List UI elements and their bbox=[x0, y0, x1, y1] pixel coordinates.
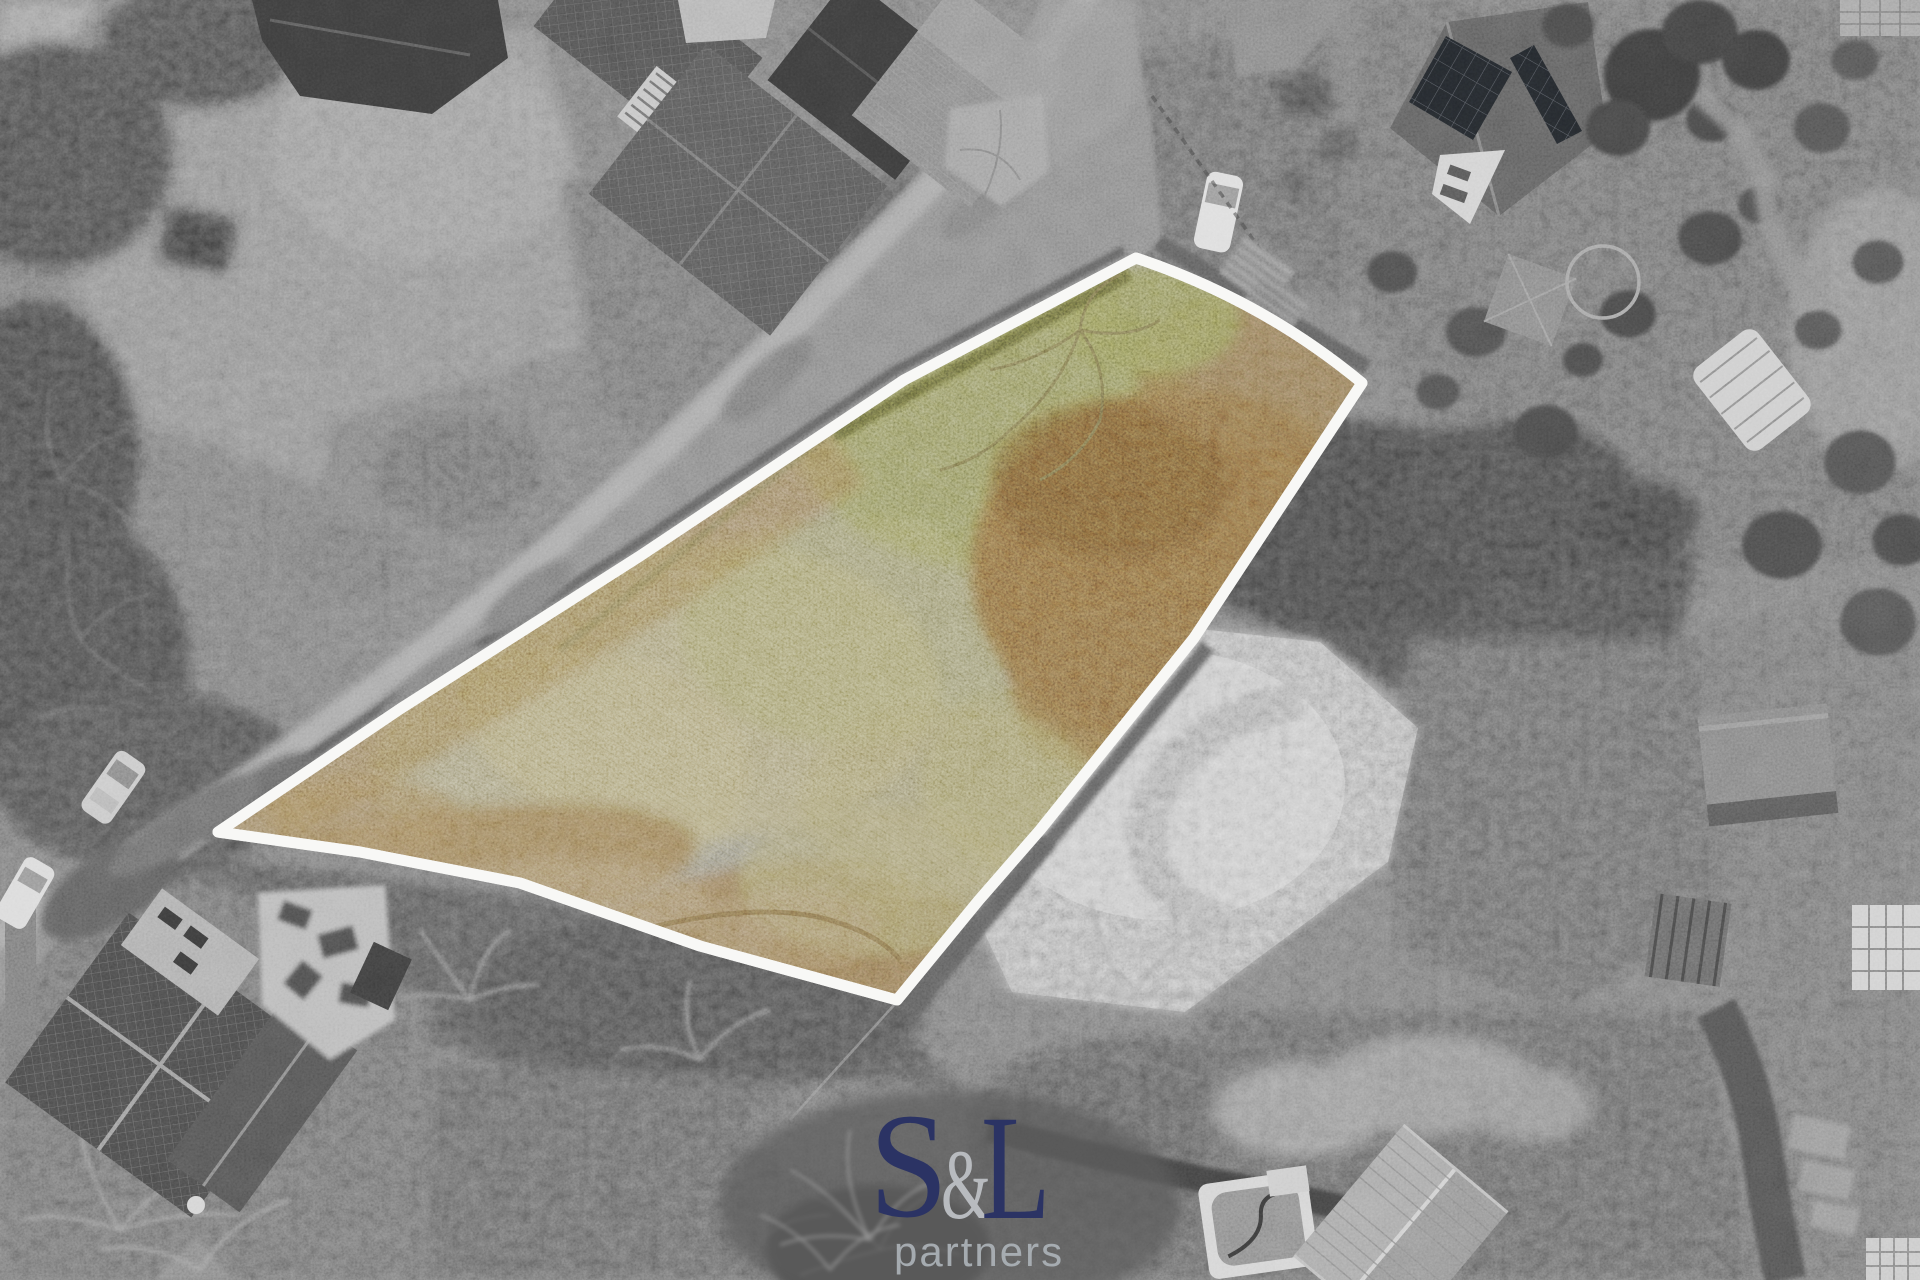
svg-text:partners: partners bbox=[894, 1228, 1064, 1275]
svg-text:S: S bbox=[869, 1083, 948, 1249]
svg-text:L: L bbox=[981, 1084, 1051, 1251]
